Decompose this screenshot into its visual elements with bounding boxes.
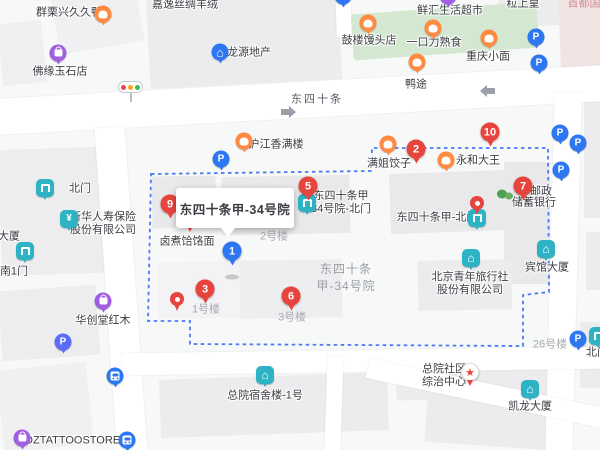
poi-label-dorm-building-1[interactable]: 总院宿舍楼-1号 — [227, 390, 303, 403]
realty-poi-pin[interactable]: ⌂ — [212, 44, 229, 61]
poi-label-xinhua-insurance[interactable]: 新华人寿保险股份有限公司 — [70, 211, 136, 237]
restaurant-poi-pin[interactable] — [236, 133, 253, 150]
parking-pin[interactable]: P — [570, 135, 587, 152]
marker-shadow — [225, 275, 239, 280]
gate-poi-pin[interactable] — [36, 179, 54, 197]
restaurant-poi-pin[interactable] — [95, 6, 112, 23]
restaurant-poi-pin[interactable] — [360, 15, 377, 32]
result-marker-7[interactable]: 7 — [514, 177, 533, 196]
road — [324, 356, 343, 450]
parking-entrance-pin[interactable]: P — [528, 29, 545, 46]
result-marker-1[interactable]: 1 — [223, 242, 242, 261]
road — [95, 126, 148, 450]
company-poi-pin[interactable]: ⌂ — [462, 249, 480, 267]
location-pin[interactable] — [170, 292, 184, 306]
map-canvas[interactable]: 东四十条甲-34号院 群栗兴久久鸭嘉逸丝绸羊绒鲜汇生活超市粒上皇首都国鼓楼馒头店… — [0, 0, 600, 450]
building — [586, 232, 600, 290]
poi-label-qunlixing-duck[interactable]: 群栗兴久久鸭 — [36, 7, 102, 20]
poi-label-manjie-dumplings[interactable]: 满姐饺子 — [367, 158, 411, 171]
poi-label-jiayi-silk[interactable]: 嘉逸丝绸羊绒 — [152, 0, 218, 12]
hotel-poi-pin[interactable]: ⌂ — [537, 240, 555, 258]
building — [146, 0, 343, 89]
gate-label-jia-north-gate[interactable]: 东四十条甲-北门 — [397, 212, 478, 225]
gate-label-yard34-north-gate[interactable]: 东四十条甲34号院-北门 — [311, 190, 371, 216]
poi-label-huachuangtang[interactable]: 华创堂红木 — [76, 315, 131, 328]
parking-pin[interactable]: P — [531, 55, 548, 72]
gate-label-south-gate-1[interactable]: 南1门 — [0, 266, 28, 279]
poi-label-lishanghuang[interactable]: 粒上皇 — [507, 0, 540, 11]
building — [584, 100, 600, 218]
poi-label-yatu[interactable]: 鸭途 — [405, 79, 427, 92]
building-label-no2: 2号楼 — [260, 231, 288, 244]
district-label-shoudu: 首都国 — [568, 0, 600, 11]
gate-poi-pin[interactable] — [589, 327, 600, 345]
poi-label-mdz-tattoo[interactable]: MDZTATTOOSTORE — [16, 435, 120, 448]
community-center-pin[interactable]: ★ — [461, 363, 479, 381]
area-label-yard34: 东四十条甲-34号院 — [316, 261, 375, 295]
parking-pin[interactable]: P — [552, 125, 569, 142]
traffic-light-icon — [118, 81, 143, 102]
bank-poi-pin[interactable]: ¥ — [60, 210, 78, 228]
parking-pin[interactable]: P — [570, 331, 587, 348]
result-marker-10[interactable]: 10 — [481, 123, 500, 142]
poi-label-luzhu-noodles[interactable]: 卤煮饸饹面 — [160, 236, 215, 249]
parking-entrance-pin[interactable]: P — [553, 162, 570, 179]
tree-icon — [497, 189, 513, 202]
shop-poi-pin[interactable] — [14, 430, 31, 447]
restaurant-poi-pin[interactable] — [380, 136, 397, 153]
parking-pin[interactable]: P — [213, 151, 230, 168]
restaurant-poi-pin[interactable] — [409, 54, 426, 71]
bus-stop-pin[interactable] — [119, 432, 136, 449]
poi-label-tower-partial[interactable]: 大厦 — [0, 231, 20, 244]
poi-label-youth-travel[interactable]: 北京青年旅行社股份有限公司 — [432, 271, 509, 297]
parking-pin[interactable]: P — [55, 334, 72, 351]
poi-label-hujiang-restaurant[interactable]: 沪江香满楼 — [249, 139, 304, 152]
building — [159, 372, 389, 438]
result-marker-5[interactable]: 5 — [299, 177, 318, 196]
result-marker-6[interactable]: 6 — [282, 287, 301, 306]
building-poi-pin[interactable]: ⌂ — [521, 380, 539, 398]
gate-label-north-gate[interactable]: 北门 — [69, 183, 91, 196]
gate-poi-pin[interactable] — [16, 242, 34, 260]
location-pin[interactable] — [470, 196, 484, 210]
street-label-dongsishitiao: 东四十条 — [291, 94, 343, 107]
shop-poi-pin[interactable] — [50, 45, 67, 62]
restaurant-poi-pin[interactable] — [438, 152, 455, 169]
restaurant-poi-pin[interactable] — [425, 20, 442, 37]
result-marker-3[interactable]: 3 — [196, 280, 215, 299]
building-label-no26: 26号楼 — [533, 339, 567, 352]
selected-poi-tooltip[interactable]: 东四十条甲-34号院 — [176, 188, 294, 228]
bus-stop-pin[interactable] — [107, 368, 124, 385]
poi-label-community-center[interactable]: 总院社区综治中心 — [422, 363, 466, 389]
restaurant-poi-pin[interactable] — [481, 30, 498, 47]
poi-label-yonghe-king[interactable]: 永和大王 — [456, 155, 500, 168]
shop-poi-pin[interactable] — [95, 293, 112, 310]
result-marker-2[interactable]: 2 — [407, 140, 426, 159]
building-poi-pin[interactable]: ⌂ — [256, 366, 274, 384]
poi-label-longyuan-realty[interactable]: 龙源地产 — [227, 47, 271, 60]
